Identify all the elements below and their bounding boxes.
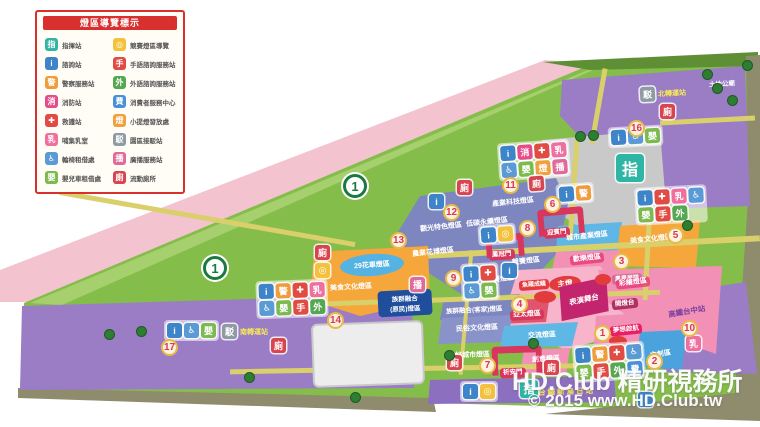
wheelchair-icon: ♿ [626, 344, 642, 360]
fire-icon: 消 [45, 95, 58, 108]
nursing-room-icon: 乳 [551, 142, 567, 158]
broadcast-icon: 播 [410, 277, 425, 292]
legend-item-label: 嬰兒車租借處 [62, 173, 101, 183]
legend-item: 燈小提燈發放處 [113, 114, 169, 127]
info-icon: i [481, 227, 497, 243]
info-icon: i [611, 130, 627, 146]
first-aid-icon: ✚ [654, 189, 670, 205]
fire-station-icon: 消 [517, 144, 533, 160]
info-icon: i [637, 190, 653, 206]
legend-item-label: 園區接駁站 [130, 135, 163, 145]
fish-lantern-label: 魚躍成龍 [519, 279, 550, 291]
legend-panel: 燈區導覽標示 指指揮站i諮詢站警警察服務站消消防站✚救護站乳哺集乳室♿輪椅租借處… [35, 10, 185, 194]
zone-label-aboriginal-2: (原民)燈區 [390, 302, 421, 314]
legend-item-label: 指揮站 [62, 40, 82, 50]
stroller-icon: 嬰 [276, 300, 292, 316]
service-panel: i 消 ✚ 乳 ♿ 嬰 燈 播 [497, 139, 571, 182]
legend-item: 指指揮站 [45, 38, 82, 51]
contest-guide-icon: ◎ [497, 226, 513, 242]
sub-lantern-oval [595, 274, 611, 285]
service-panel: i ♿ 嬰 [164, 320, 219, 341]
contest-guide-icon: ◎ [315, 263, 330, 278]
service-panel: i ◎ [460, 381, 498, 402]
legend-item: 消消防站 [45, 95, 82, 108]
legend-item: i諮詢站 [45, 57, 82, 70]
tree-icon [702, 69, 713, 80]
zone-label-floats: 29花車燈區 [354, 259, 390, 271]
tree-icon [444, 350, 455, 361]
legend-item-label: 救護站 [62, 116, 82, 126]
toilet-icon: 廁 [457, 180, 472, 195]
point-marker: 4 [511, 296, 528, 313]
legend-title: 燈區導覽標示 [43, 16, 177, 30]
legend-item-label: 外語諮詢服務站 [130, 78, 176, 88]
stroller-icon: 嬰 [645, 128, 661, 144]
wheelchair-icon: ♿ [259, 301, 275, 317]
legend-item-label: 諮詢站 [62, 59, 82, 69]
legend-item-label: 競賽燈區導覽 [130, 40, 169, 50]
tree-icon [528, 338, 539, 349]
command-icon: 指 [45, 38, 58, 51]
toilet-icon: 廁 [660, 104, 675, 119]
legend-item-label: 小提燈發放處 [130, 116, 169, 126]
nursing-room-icon: 乳 [671, 188, 687, 204]
wheelchair-icon: ♿ [501, 162, 517, 178]
legend-item: ◎競賽燈區導覽 [113, 38, 169, 51]
command-hq-glyph: 指 [622, 156, 638, 180]
info-icon: i [500, 145, 516, 161]
north-shuttle-station: 駁 北轉運站 [640, 85, 687, 102]
contest-icon: ◎ [113, 38, 126, 51]
legend-item-label: 輪椅租借處 [62, 154, 95, 164]
stroller-icon: 嬰 [481, 282, 497, 298]
service-panel: i ✚ ♿ 嬰 [460, 262, 500, 302]
sign-language-icon: 手 [655, 206, 671, 222]
service-panel: i 警 [555, 182, 594, 206]
point-marker: 6 [544, 196, 561, 213]
first-aid-icon: ✚ [609, 345, 625, 361]
contest-guide-icon: ◎ [480, 384, 495, 399]
south-shuttle-station: 駁 南轉運站 [222, 324, 268, 339]
lantern-icon: 燈 [113, 114, 126, 127]
wheelchair-icon: ♿ [464, 283, 480, 299]
broadcast-icon: 播 [113, 152, 126, 165]
wheelchair-icon: ♿ [688, 187, 704, 203]
info-icon: i [575, 347, 591, 363]
police-icon: 警 [575, 185, 591, 201]
info-icon: i [502, 263, 517, 278]
tree-icon [350, 392, 361, 403]
police-icon: 警 [592, 346, 608, 362]
tree-icon [244, 372, 255, 383]
highway-1-marker: 1 [343, 174, 367, 198]
service-panel: i ◎ [477, 223, 516, 247]
tree-icon [588, 130, 599, 141]
point-marker: 17 [161, 339, 178, 356]
info-icon: i [429, 194, 444, 209]
stroller-icon: 嬰 [45, 171, 58, 184]
stage-label: 表演舞台 [569, 290, 599, 307]
wheelchair-icon: ♿ [184, 323, 199, 338]
point-marker: 8 [519, 220, 536, 237]
service-panel: i ✚ 乳 ♿ 嬰 手 外 [634, 184, 708, 226]
consumer-icon: 費 [113, 95, 126, 108]
foreign-language-icon: 外 [672, 205, 688, 221]
info-icon: i [258, 284, 274, 300]
shuttle-icon: 駁 [640, 86, 656, 102]
shuttle-icon: 駁 [113, 133, 126, 146]
legend-item-label: 哺集乳室 [62, 135, 88, 145]
nursing-room-icon: 乳 [309, 282, 325, 298]
info-icon: i [463, 266, 479, 282]
info-icon: i [45, 57, 58, 70]
point-marker: 11 [502, 177, 519, 194]
signlang-icon: 手 [113, 57, 126, 70]
stroller-icon: 嬰 [518, 161, 534, 177]
aid-icon: ✚ [45, 114, 58, 127]
watermark-line2: © 2015 www.HD.Club.tw [528, 391, 722, 411]
foreign-language-icon: 外 [310, 299, 326, 315]
legend-item-label: 手語諮詢服務站 [130, 59, 176, 69]
toilet-icon: 廁 [271, 338, 286, 353]
foreign-icon: 外 [113, 76, 126, 89]
legend-item: 警警察服務站 [45, 76, 95, 89]
point-marker: 14 [327, 312, 344, 329]
tree-icon [727, 95, 738, 106]
legend-item: 外外語諮詢服務站 [113, 76, 176, 89]
legend-item: 駁園區接駁站 [113, 133, 163, 146]
first-aid-icon: ✚ [534, 143, 550, 159]
zone-box-aboriginal: 族群融合 (原民)燈區 [377, 289, 432, 318]
point-marker: 16 [628, 120, 645, 137]
point-marker: 9 [445, 270, 462, 287]
nursing-room-icon: 乳 [686, 336, 701, 351]
point-marker: 5 [667, 227, 684, 244]
legend-item-label: 警察服務站 [62, 78, 95, 88]
toilet-icon: 廁 [113, 171, 126, 184]
wheelchair-icon: ♿ [45, 152, 58, 165]
festival-map-page: 29花車燈區 族群融合 (原民)燈區 迎賓門 鳳冠門 祈安門 主燈 表演舞台 開… [0, 0, 760, 427]
legend-item: 嬰嬰兒車租借處 [45, 171, 101, 184]
legend-item: 乳哺集乳室 [45, 133, 88, 146]
legend-item-label: 消費者服務中心 [130, 97, 176, 107]
tree-icon [712, 83, 723, 94]
tree-icon [575, 131, 586, 142]
service-panel: i 警 ✚ 乳 ♿ 嬰 手 外 [255, 279, 328, 319]
info-icon: i [167, 323, 182, 338]
stroller-icon: 嬰 [638, 207, 654, 223]
stroller-icon: 嬰 [201, 323, 216, 338]
point-marker: 7 [479, 357, 496, 374]
legend-item-label: 消防站 [62, 97, 82, 107]
highway-number: 1 [351, 179, 358, 194]
point-marker: 3 [613, 253, 630, 270]
police-icon: 警 [275, 283, 291, 299]
info-icon: i [559, 186, 575, 202]
legend-item: ♿輪椅租借處 [45, 152, 95, 165]
lantern-handout-icon: 燈 [535, 160, 551, 176]
north-station-label: 北轉運站 [658, 87, 686, 98]
legend-item-label: 流動廁所 [130, 173, 156, 183]
shuttle-icon: 駁 [222, 324, 237, 339]
sign-language-icon: 手 [293, 299, 309, 315]
police-icon: 警 [45, 76, 58, 89]
point-marker: 12 [443, 204, 460, 221]
first-aid-icon: ✚ [292, 282, 308, 298]
broadcast-icon: 播 [552, 159, 568, 175]
toilet-icon: 廁 [528, 175, 544, 191]
south-station-label: 南轉運站 [240, 327, 268, 337]
sub-lantern-oval [534, 291, 556, 303]
tree-icon [104, 329, 115, 340]
highway-number: 1 [211, 261, 218, 276]
tree-icon [742, 60, 753, 71]
nursing-icon: 乳 [45, 133, 58, 146]
legend-item: 費消費者服務中心 [113, 95, 176, 108]
exhibition-hall [311, 320, 425, 388]
info-icon: i [463, 384, 478, 399]
toilet-icon: 廁 [315, 245, 330, 260]
first-aid-icon: ✚ [480, 265, 496, 281]
legend-item: ✚救護站 [45, 114, 82, 127]
point-marker: 1 [594, 325, 611, 342]
legend-item: 手手語諮詢服務站 [113, 57, 176, 70]
highway-1-marker: 1 [203, 256, 227, 280]
point-marker: 10 [681, 320, 698, 337]
tree-icon [682, 220, 693, 231]
legend-item: 廁流動廁所 [113, 171, 156, 184]
legend-item: 播廣播服務站 [113, 152, 163, 165]
point-marker: 13 [390, 232, 407, 249]
command-hq-icon: 指 [616, 154, 644, 182]
tree-icon [136, 326, 147, 337]
legend-item-label: 廣播服務站 [130, 154, 163, 164]
